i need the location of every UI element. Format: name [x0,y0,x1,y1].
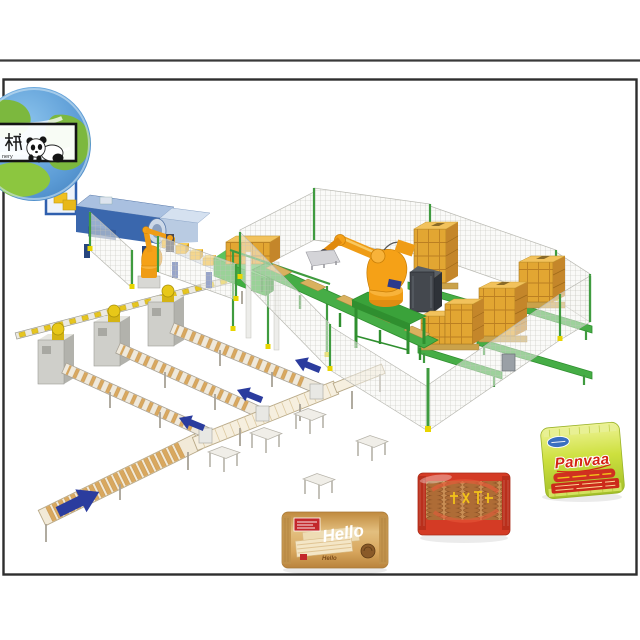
page: 械 nery Hello Hello [0,0,640,640]
package-red-biscuit [418,473,510,535]
conveyor-junction [256,406,269,421]
package-panvaa: Panvaa [540,422,625,500]
package-hello-wafer: Hello Hello [282,512,388,568]
conveyor-junction [199,428,212,443]
hazelnut-image [361,544,375,558]
hello-small-text: Hello [322,556,337,562]
control-cabinet [410,266,442,312]
illustration-canvas: 械 nery Hello Hello [0,0,640,640]
conveyor-junction [310,384,323,399]
logo-partial-word: nery [2,154,13,160]
waste-bin [502,354,515,371]
